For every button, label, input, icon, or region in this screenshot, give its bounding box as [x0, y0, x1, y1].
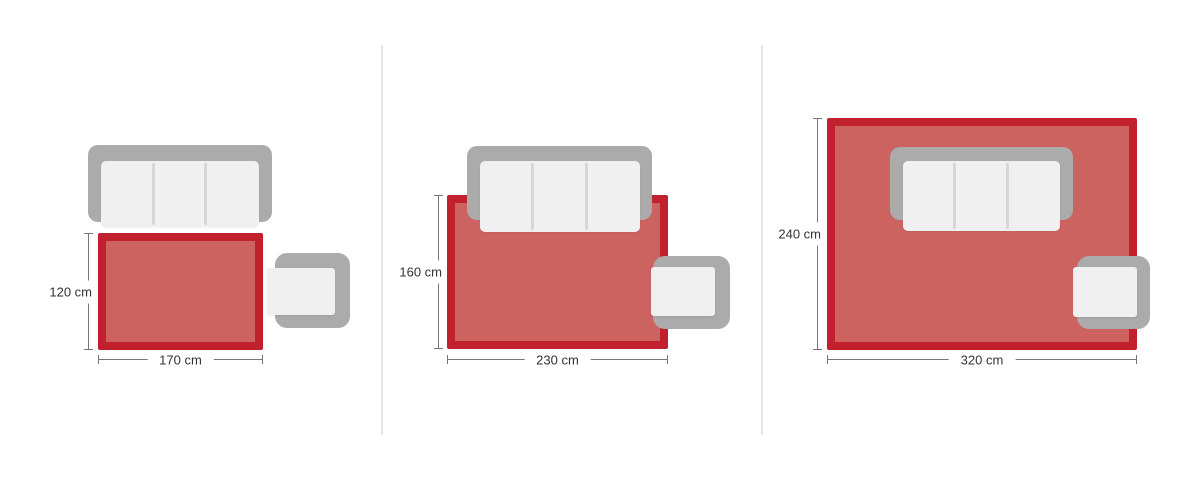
armchair-seat [1073, 267, 1137, 317]
width-dimension-line: 170 cm [98, 355, 263, 364]
cushion-divider [585, 163, 588, 230]
rug-width-label: 230 cm [524, 352, 591, 369]
height-dimension-line: 120 cm [84, 233, 93, 350]
panel-divider [761, 45, 763, 435]
armchair-seat [267, 268, 335, 315]
rug-height-label: 160 cm [396, 261, 445, 284]
sofa-cushions [903, 161, 1060, 231]
rug-width-label: 170 cm [147, 352, 214, 369]
armchair-seat [651, 267, 715, 316]
sofa-cushions [480, 161, 640, 232]
rug-height-label: 240 cm [775, 223, 824, 246]
rug-width-label: 320 cm [949, 352, 1016, 369]
cushion-divider [152, 163, 155, 225]
sofa-cushions [101, 161, 259, 227]
height-dimension-line: 240 cm [813, 118, 822, 350]
height-dimension-line: 160 cm [434, 195, 443, 349]
panel-divider [381, 45, 383, 435]
cushion-divider [953, 163, 956, 229]
cushion-divider [1006, 163, 1009, 229]
cushion-divider [531, 163, 534, 230]
rug-small [98, 233, 263, 350]
cushion-divider [204, 163, 207, 225]
rug-height-label: 120 cm [46, 280, 95, 303]
width-dimension-line: 230 cm [447, 355, 668, 364]
width-dimension-line: 320 cm [827, 355, 1137, 364]
rug-size-comparison-diagram: 120 cm 170 cm 160 cm 230 cm [0, 0, 1200, 485]
